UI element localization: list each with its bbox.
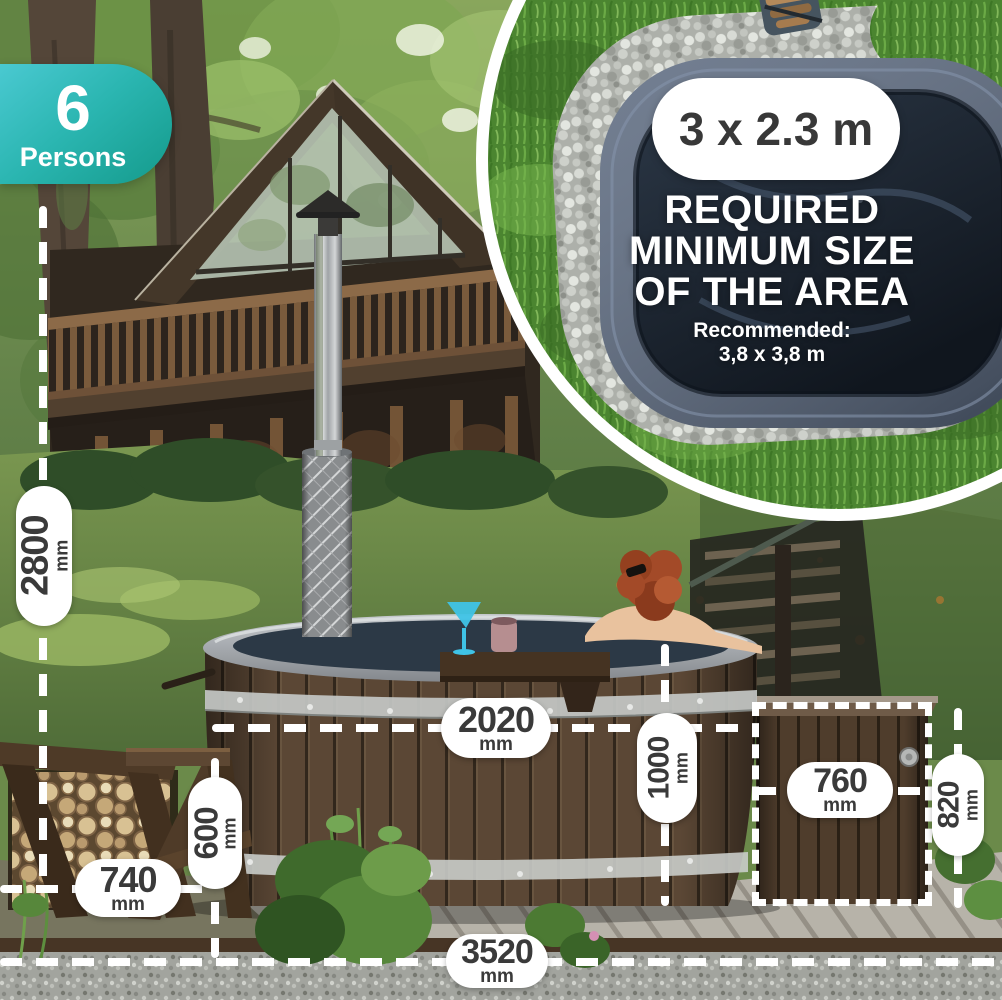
persons-badge: 6 Persons — [0, 64, 172, 184]
dimension-unit: mm — [480, 968, 514, 985]
dimension-pill-tub-diameter: 2020mm — [441, 698, 551, 758]
dimension-unit: mm — [111, 896, 145, 913]
dimension-unit: mm — [53, 540, 70, 572]
dimension-unit: mm — [964, 789, 981, 821]
dimension-value: 820 — [936, 781, 964, 828]
dimension-pill-step-height: 600mm — [188, 777, 242, 889]
inset-recommended-label: Recommended: — [637, 319, 907, 343]
dimension-pill-box-width: 760mm — [787, 762, 893, 818]
dimension-pill-total-length: 3520mm — [446, 934, 548, 988]
inset-heading: REQUIRED MINIMUM SIZE OF THE AREA — [542, 190, 1002, 312]
product-infographic: 6 Persons 3 x 2.3 m REQUIRED MINIMUM SIZ… — [0, 0, 1002, 1000]
dimension-value: 600 — [192, 807, 222, 859]
inset-heading-line3: OF THE AREA — [542, 272, 1002, 313]
dimension-unit: mm — [823, 797, 857, 814]
inset-recommended-size: 3,8 x 3,8 m — [637, 343, 907, 367]
dimension-value: 1000 — [645, 737, 673, 800]
inset-heading-line2: MINIMUM SIZE — [542, 231, 1002, 272]
dimension-value: 2020 — [458, 703, 534, 736]
dimension-pill-woodshed-width: 740mm — [75, 859, 181, 917]
dimension-value: 740 — [99, 863, 156, 896]
inset-size-text: 3 x 2.3 m — [679, 102, 873, 156]
badge-count: 6 — [55, 76, 91, 140]
dimension-pill-tub-height: 1000mm — [637, 713, 697, 823]
inset-recommended: Recommended: 3,8 x 3,8 m — [637, 319, 907, 367]
dimension-unit: mm — [673, 752, 690, 784]
dimension-value: 760 — [813, 766, 867, 797]
dimension-unit: mm — [479, 736, 513, 753]
inset-heading-line1: REQUIRED — [542, 190, 1002, 231]
dimension-pill-overall-height: 2800mm — [16, 486, 72, 626]
badge-label: Persons — [20, 142, 127, 173]
inset-size-pill: 3 x 2.3 m — [652, 78, 900, 180]
dimension-unit: mm — [222, 817, 239, 849]
dimension-value: 2800 — [18, 516, 53, 597]
dimension-value: 3520 — [461, 937, 533, 968]
dimension-pill-box-height: 820mm — [932, 754, 984, 856]
